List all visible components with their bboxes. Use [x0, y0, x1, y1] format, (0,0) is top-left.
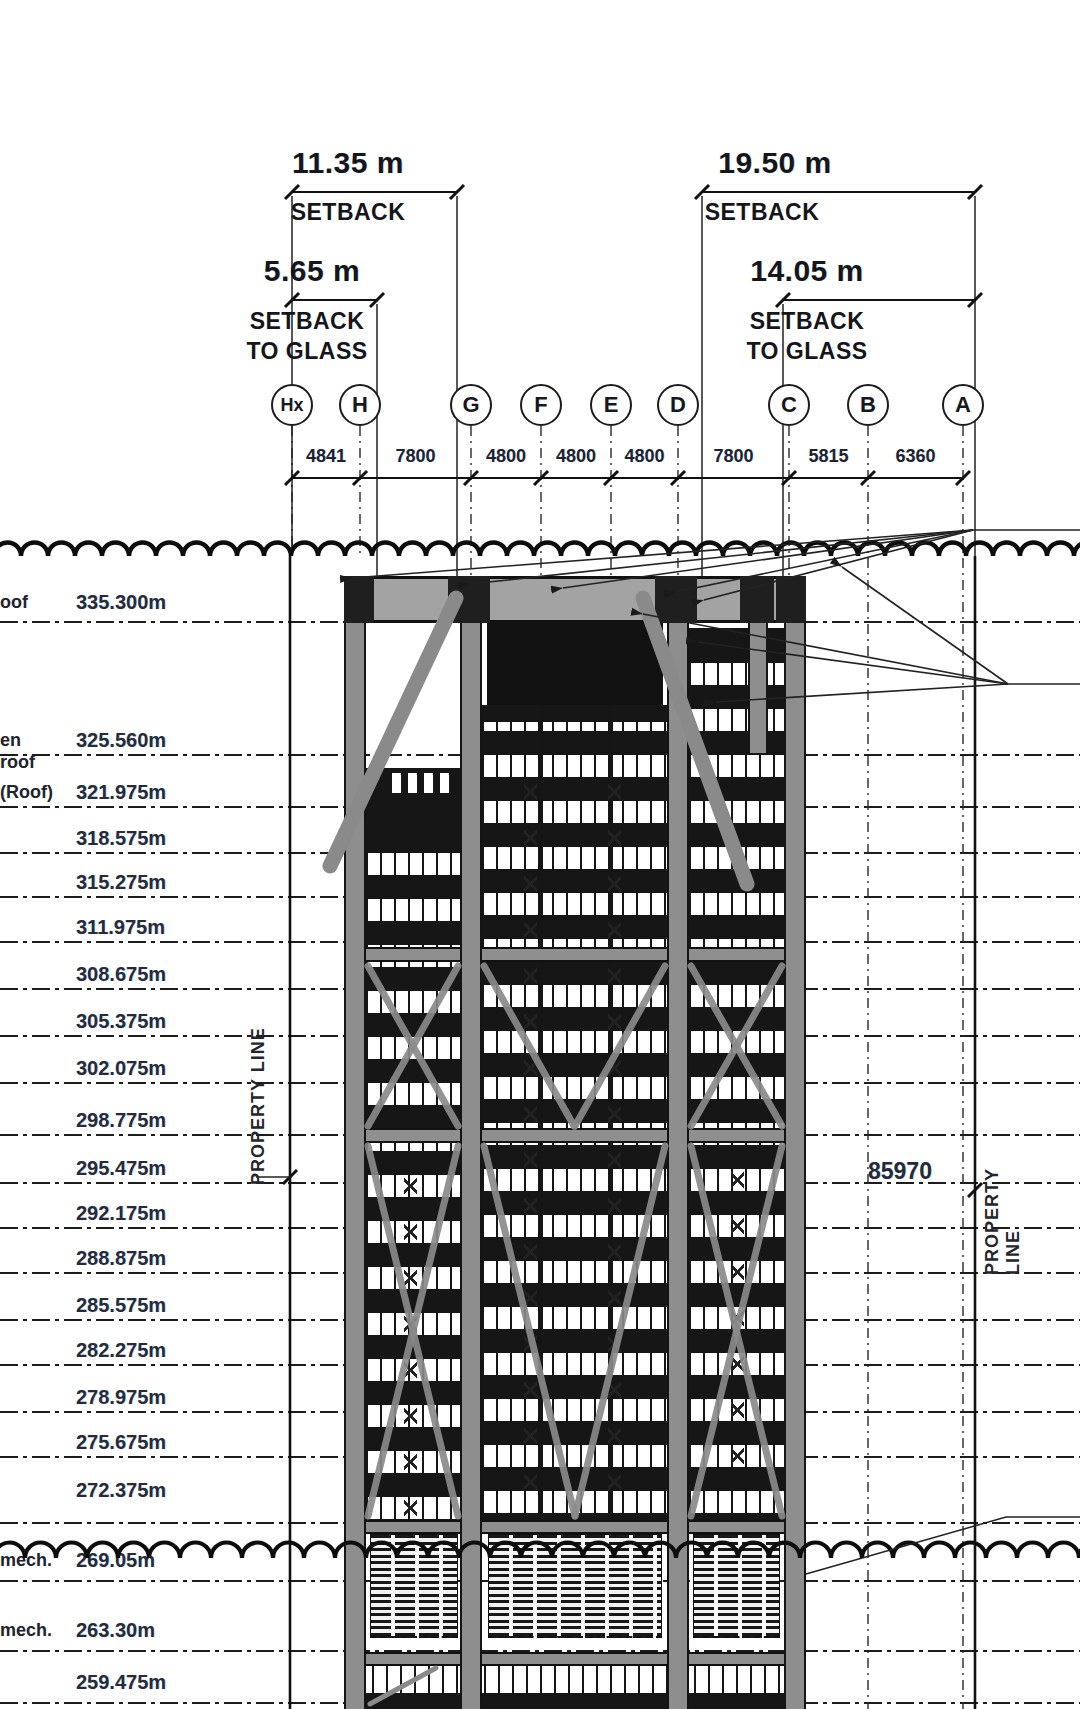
bay-brace-glyph	[608, 1380, 621, 1400]
level-value: 288.875m	[76, 1247, 166, 1269]
bay-brace-glyph	[524, 1196, 537, 1216]
bay-brace-glyph	[524, 1426, 537, 1446]
level-value: 325.560m	[76, 729, 166, 751]
bay-brace-glyph	[524, 1104, 537, 1124]
level-value: 308.675m	[76, 963, 166, 985]
bay-brace-glyph	[608, 966, 621, 986]
grid-bubble-h: H	[339, 384, 381, 426]
grid-bubble-e: E	[590, 384, 632, 426]
bay-brace-glyph	[731, 1308, 744, 1328]
grid-bubble-c: C	[768, 384, 810, 426]
bay-brace-glyph	[524, 1380, 537, 1400]
grid-bubble-hx: Hx	[271, 384, 313, 426]
bay-brace-glyph	[524, 1288, 537, 1308]
bay-brace-glyph	[524, 1058, 537, 1078]
bay-brace-glyph	[608, 1104, 621, 1124]
bay-brace-glyph	[608, 1472, 621, 1492]
bay-brace-glyph	[608, 1288, 621, 1308]
level-value: 295.475m	[76, 1157, 166, 1179]
bay-brace-glyph	[608, 1012, 621, 1032]
level-prefix: en roof	[0, 729, 35, 773]
overall-width-dimension: 85970	[868, 1158, 932, 1185]
bay-brace-glyph	[608, 828, 621, 848]
setback-dim-right-inner-value: 14.05 m	[702, 254, 912, 288]
grid-bubble-f: F	[520, 384, 562, 426]
setback-dim-right-outer-label: SETBACK	[657, 199, 867, 226]
level-prefix: (Roof)	[0, 781, 53, 803]
elevation-drawing-sheet: oof335.300men roof325.560m(Roof)321.975m…	[0, 0, 1080, 1709]
level-value: 315.275m	[76, 871, 166, 893]
bay-brace-glyph	[608, 1150, 621, 1170]
bay-brace-glyph	[524, 1472, 537, 1492]
bay-brace-glyph	[608, 782, 621, 802]
bay-brace-glyph	[524, 874, 537, 894]
grid-spacing-value: 4800	[466, 446, 546, 467]
bay-brace-glyph	[524, 828, 537, 848]
level-prefix: mech.	[0, 1549, 52, 1571]
bay-brace-glyph	[608, 1426, 621, 1446]
level-value: 259.475m	[76, 1671, 166, 1693]
bay-brace-glyph	[608, 1334, 621, 1354]
bay-brace-glyph	[404, 1498, 417, 1518]
level-value: 292.175m	[76, 1202, 166, 1224]
level-value: 282.275m	[76, 1339, 166, 1361]
setback-dim-right-inner-label1: SETBACK	[702, 308, 912, 335]
setback-dim-left-inner-value: 5.65 m	[207, 254, 417, 288]
grid-bubble-g: G	[450, 384, 492, 426]
setback-dim-left-inner-label2: TO GLASS	[202, 338, 412, 365]
setback-dim-left-inner-label1: SETBACK	[202, 308, 412, 335]
grid-bubble-b: B	[847, 384, 889, 426]
bay-brace-glyph	[404, 1452, 417, 1472]
bay-brace-glyph	[404, 1176, 417, 1196]
grid-spacing-value: 4841	[286, 446, 366, 467]
grid-bubble-d: D	[657, 384, 699, 426]
level-value: 305.375m	[76, 1010, 166, 1032]
bay-brace-glyph	[404, 1406, 417, 1426]
grid-spacing-value: 4800	[605, 446, 685, 467]
bay-brace-glyph	[524, 782, 537, 802]
bay-brace-glyph	[608, 1058, 621, 1078]
level-value: 272.375m	[76, 1479, 166, 1501]
level-value: 285.575m	[76, 1294, 166, 1316]
bay-brace-glyph	[404, 1360, 417, 1380]
level-value: 298.775m	[76, 1109, 166, 1131]
property-line-label-right: PROPERTY LINE	[982, 1168, 1024, 1275]
level-value: 263.30m	[76, 1619, 155, 1641]
bay-brace-glyph	[608, 1196, 621, 1216]
grid-spacing-value: 7800	[694, 446, 774, 467]
level-value: 278.975m	[76, 1386, 166, 1408]
bay-brace-glyph	[524, 920, 537, 940]
level-value: 318.575m	[76, 827, 166, 849]
bay-brace-glyph	[404, 1268, 417, 1288]
bay-brace-glyph	[731, 1216, 744, 1236]
bay-brace-glyph	[731, 1262, 744, 1282]
bay-brace-glyph	[524, 1150, 537, 1170]
bay-brace-glyph	[608, 874, 621, 894]
bay-brace-glyph	[731, 1400, 744, 1420]
level-prefix: oof	[0, 591, 28, 613]
grid-spacing-value: 6360	[876, 446, 956, 467]
bay-brace-glyph	[608, 1242, 621, 1262]
setback-dim-left-outer-label: SETBACK	[243, 199, 453, 226]
level-value: 311.975m	[76, 916, 165, 938]
level-value: 321.975m	[76, 781, 166, 803]
bay-brace-glyph	[731, 1354, 744, 1374]
level-value: 335.300m	[76, 591, 166, 613]
level-value: 269.05m	[76, 1549, 155, 1571]
bay-brace-glyph	[731, 1170, 744, 1190]
bay-brace-glyph	[731, 1446, 744, 1466]
bay-brace-glyph	[608, 920, 621, 940]
grid-bubble-a: A	[942, 384, 984, 426]
building-elevation	[344, 576, 806, 1709]
bay-brace-glyph	[404, 1222, 417, 1242]
level-value: 275.675m	[76, 1431, 166, 1453]
window-brace-glyphs	[344, 576, 806, 1709]
setback-dim-left-outer-value: 11.35 m	[243, 146, 453, 180]
level-prefix: mech.	[0, 1619, 52, 1641]
level-value: 302.075m	[76, 1057, 166, 1079]
grid-spacing-value: 7800	[376, 446, 456, 467]
bay-brace-glyph	[524, 1242, 537, 1262]
bay-brace-glyph	[524, 1012, 537, 1032]
grid-spacing-value: 5815	[789, 446, 869, 467]
bay-brace-glyph	[524, 1334, 537, 1354]
setback-dim-right-inner-label2: TO GLASS	[702, 338, 912, 365]
bay-brace-glyph	[404, 1314, 417, 1334]
bay-brace-glyph	[524, 966, 537, 986]
setback-dim-right-outer-value: 19.50 m	[670, 146, 880, 180]
property-line-label-left: PROPERTY LINE	[248, 1027, 269, 1185]
